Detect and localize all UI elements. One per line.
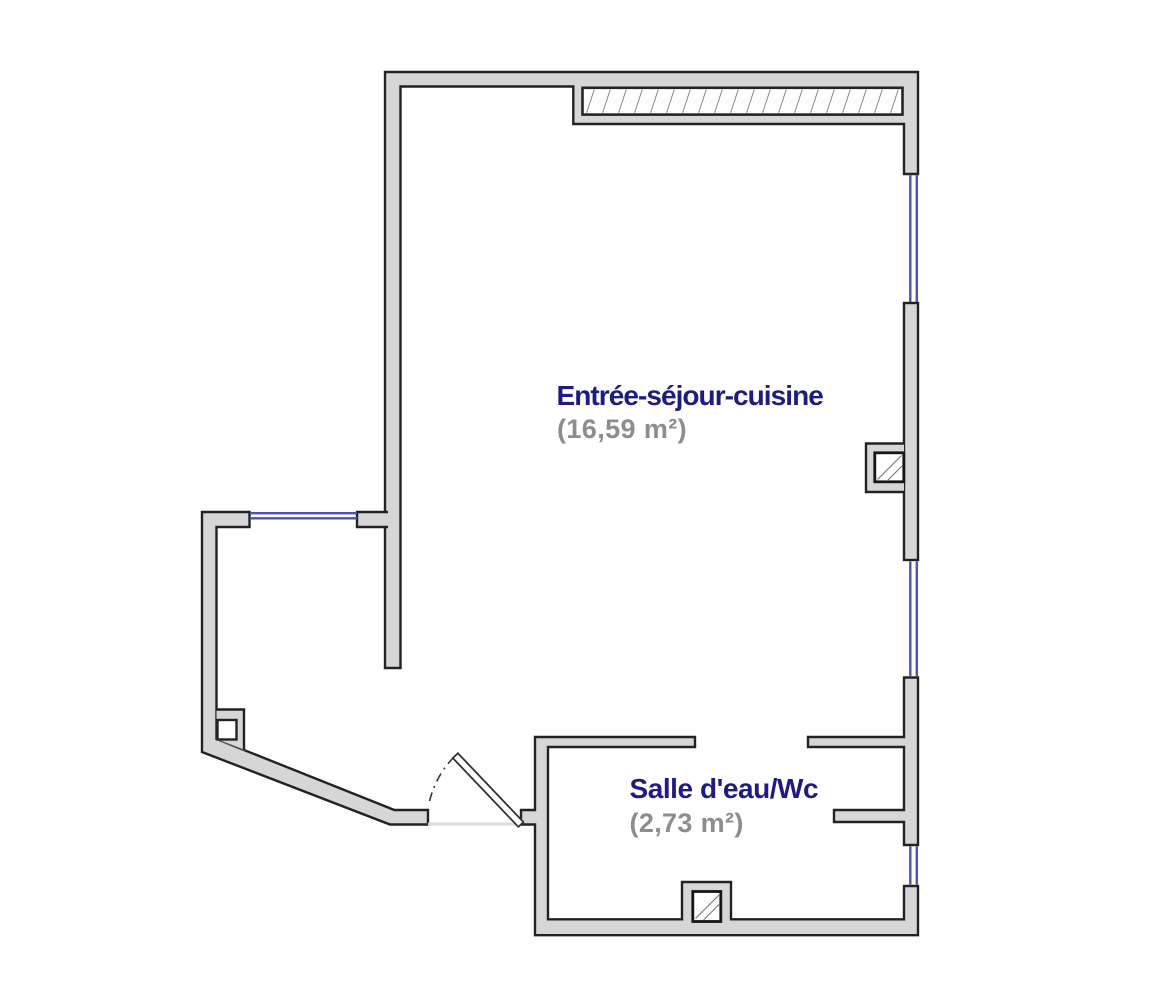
svg-text:(2,73 m²): (2,73 m²): [630, 808, 744, 838]
svg-text:Entrée-séjour-cuisine: Entrée-séjour-cuisine: [557, 380, 824, 411]
svg-text:Salle d'eau/Wc: Salle d'eau/Wc: [630, 773, 819, 804]
svg-text:(16,59 m²): (16,59 m²): [557, 414, 687, 444]
